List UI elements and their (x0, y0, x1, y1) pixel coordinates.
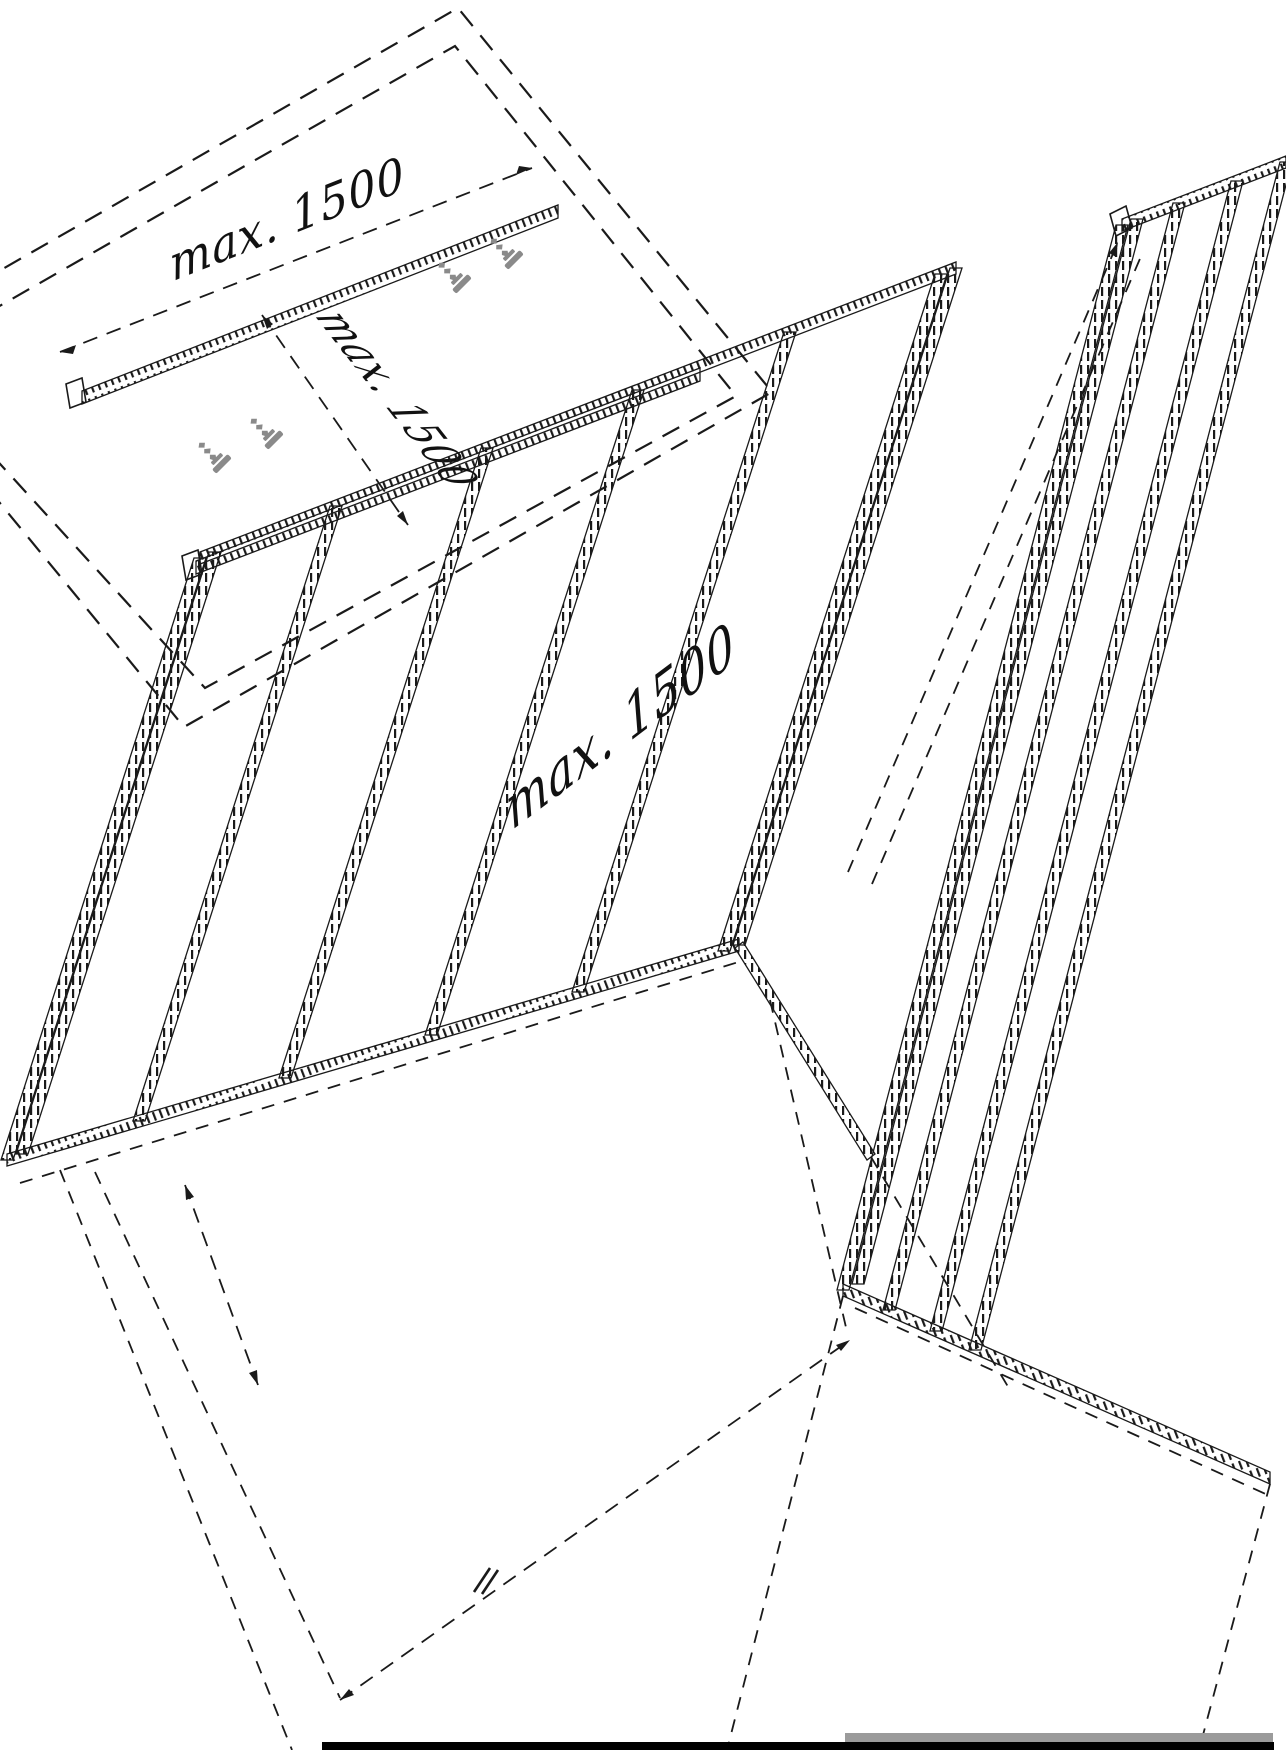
dimension-arrowhead (249, 1370, 258, 1385)
dimension-arrowhead (185, 1185, 194, 1200)
dimension-arrowhead (340, 1689, 354, 1700)
isometric-panel-drawing: max. 1500 max. 1500 max. 1500 (0, 0, 1286, 1750)
central-panel-bottom-edge (7, 939, 739, 1166)
central-panel-right-edge-inner (718, 274, 947, 951)
right-panel-right-edge (969, 162, 1286, 1350)
central-panel-left-edge (1, 558, 206, 1160)
bottom-bar-black (322, 1742, 1274, 1750)
right-panel-bottom-edge (843, 1284, 1270, 1484)
technical-drawing-canvas: max. 1500 max. 1500 max. 1500 (0, 0, 1286, 1750)
central-panel-left-edge-inner (16, 552, 221, 1154)
central-panel-end-face (735, 942, 875, 1160)
central-panel-rib (133, 506, 342, 1121)
hidden-edges-lower (20, 960, 1010, 1750)
dimension-arrowhead (397, 511, 408, 525)
dimension-bottom-width (340, 1340, 850, 1700)
right-panel (837, 156, 1286, 1484)
central-panel: max. 1500 (1, 262, 962, 1166)
central-panel-rib (279, 448, 493, 1078)
screw-icon (244, 410, 284, 450)
screw-icon (192, 434, 232, 474)
central-panel-right-edge (733, 268, 962, 945)
dimension-arrowhead (60, 345, 76, 354)
right-panel-top-edge (1122, 156, 1286, 231)
dimension-arrowhead (516, 166, 532, 175)
dimension-lower-left (185, 1185, 258, 1385)
dimension-label-top: max. 1500 (165, 146, 409, 292)
right-panel-left-edge-inner (852, 219, 1143, 1284)
bottom-bar-gray (845, 1733, 1273, 1742)
